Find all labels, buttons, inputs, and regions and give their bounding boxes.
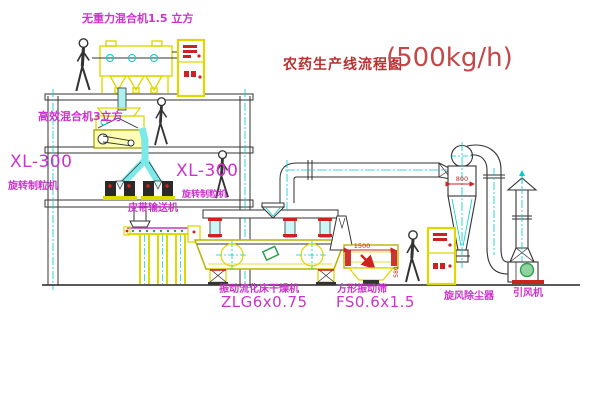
dim-580: 580 [393,266,400,278]
flow-diagram: 800 1500 [0,0,600,403]
label-dryer-model: ZLG6x0.75 [221,295,308,310]
label-belt-conveyor: 皮带输送机 [128,204,178,214]
granulator-right [141,181,175,200]
diagram-capacity: (500kg/h) [386,43,513,73]
label-granulator-name-left: 旋转制粒机 [8,182,58,192]
downpipe [483,170,508,274]
label-gravity-mixer: 无重力混合机1.5 立方 [82,13,193,24]
mixer-drop-pipe [118,88,126,110]
induced-draft-fan [508,262,544,284]
diagram-title: 农药生产线流程图 [283,54,403,74]
control-cabinet-bottom [428,228,455,284]
dim-800: 800 [456,175,468,183]
exhaust-duct [280,160,451,203]
label-granulator-model-left: XL-300 [10,154,72,171]
label-sieve-model: FS0.6x1.5 [336,295,415,310]
label-granulator-name-right: 旋转制粒机 [182,191,227,200]
conveyor-legs [140,235,185,284]
person-figure [406,231,419,282]
granulator-left [103,181,137,200]
label-fan: 引风机 [513,289,543,299]
dim-1500: 1500 [354,242,371,250]
person-figure [76,39,89,91]
label-cyclone: 旋风除尘器 [444,292,494,302]
gravity-free-mixer [100,41,172,93]
dryer-springs [208,269,336,285]
label-granulator-model-right: XL-300 [176,163,238,180]
label-high-eff-mixer: 高效混合机3立方 [38,111,123,122]
vibrating-sieve [344,245,398,284]
dryer-stubs [208,218,332,237]
person-figure [155,98,167,145]
control-cabinet-top [178,40,204,96]
